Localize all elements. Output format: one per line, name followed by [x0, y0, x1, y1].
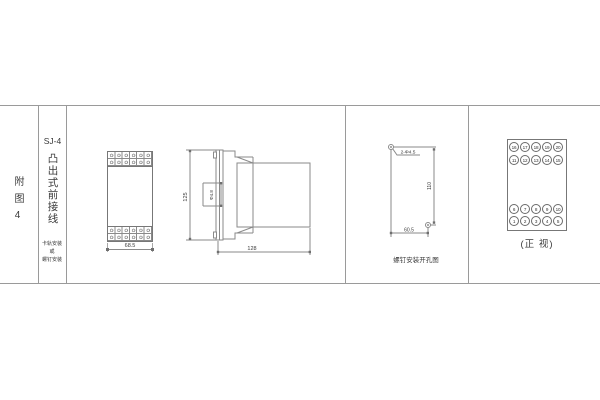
mounting-note: 卡轨安装 或 螺钉安装 — [38, 240, 66, 264]
terminal-row-4: 1 2 3 4 5 — [509, 216, 563, 226]
rule-bottom — [0, 283, 600, 284]
figure-label: 附图4 — [12, 176, 23, 236]
terminal-row-3: 6 7 8 9 10 — [509, 204, 563, 214]
mounting-note-line1: 卡轨安装 — [38, 240, 66, 248]
side-view-top-clamp — [223, 151, 253, 163]
side-view-hole-dimension: Φ4.8 — [209, 190, 214, 200]
drill-view-drawing: 2-Φ4.5 110 60.5 — [380, 140, 445, 240]
terminal-circle: 16 — [509, 142, 519, 152]
terminal-circle: 1 — [509, 216, 519, 226]
terminal-circle: 12 — [520, 155, 530, 165]
terminal-circle: 10 — [553, 204, 563, 214]
side-view-body — [237, 163, 310, 227]
terminal-row-1: 16 17 18 19 20 — [509, 142, 563, 152]
drill-width-dimension: 60.5 — [404, 228, 414, 234]
front-view-width-dimension: 68.5 — [107, 243, 153, 249]
drill-holes-label: 2-Φ4.5 — [401, 150, 416, 156]
terminal-circle: 11 — [509, 155, 519, 165]
column-line-4 — [468, 105, 469, 284]
side-view-drawing: 125 Φ4.8 128 — [180, 140, 320, 265]
terminal-circle: 8 — [531, 204, 541, 214]
drill-height-dimension: 110 — [427, 182, 433, 190]
terminal-row-2: 11 12 13 14 15 — [509, 155, 563, 165]
terminal-circle: 7 — [520, 204, 530, 214]
terminal-circle: 18 — [531, 142, 541, 152]
terminal-circle: 6 — [509, 204, 519, 214]
terminal-view-caption: (正 视) — [509, 240, 565, 250]
terminal-circle: 9 — [542, 204, 552, 214]
side-view-depth-dimension-lines — [218, 228, 310, 255]
side-view-lug-bottom — [214, 232, 217, 238]
drill-view-caption: 螺钉安装开孔图 — [382, 257, 450, 264]
terminal-circle: 20 — [553, 142, 563, 152]
side-view-bottom-clamp — [223, 227, 253, 239]
terminal-circle: 3 — [531, 216, 541, 226]
front-view-terminal-strip-bottom — [107, 226, 153, 242]
side-view-lug-top — [214, 152, 217, 158]
terminal-circle: 15 — [553, 155, 563, 165]
column-line-2 — [66, 105, 67, 284]
mounting-note-line2: 或 — [38, 248, 66, 256]
column-line-3 — [345, 105, 346, 284]
side-view-height-dimension: 125 — [183, 192, 189, 201]
front-view-terminal-strip-top — [107, 151, 153, 167]
terminal-circle: 13 — [531, 155, 541, 165]
model-label: SJ-4 — [39, 137, 66, 146]
terminal-circle: 19 — [542, 142, 552, 152]
mounting-note-line3: 螺钉安装 — [38, 256, 66, 264]
terminal-circle: 2 — [520, 216, 530, 226]
product-title: 凸出式前接线 — [46, 153, 58, 231]
side-view-depth-dimension: 128 — [247, 246, 256, 252]
terminal-circle: 17 — [520, 142, 530, 152]
terminal-circle: 5 — [553, 216, 563, 226]
drawing-sheet: 附图4 SJ-4 凸出式前接线 卡轨安装 或 螺钉安装 68.5 — [0, 0, 600, 400]
front-view-width-dimension-line — [107, 249, 153, 250]
terminal-circle: 14 — [542, 155, 552, 165]
rule-top — [0, 105, 600, 106]
terminal-circle: 4 — [542, 216, 552, 226]
